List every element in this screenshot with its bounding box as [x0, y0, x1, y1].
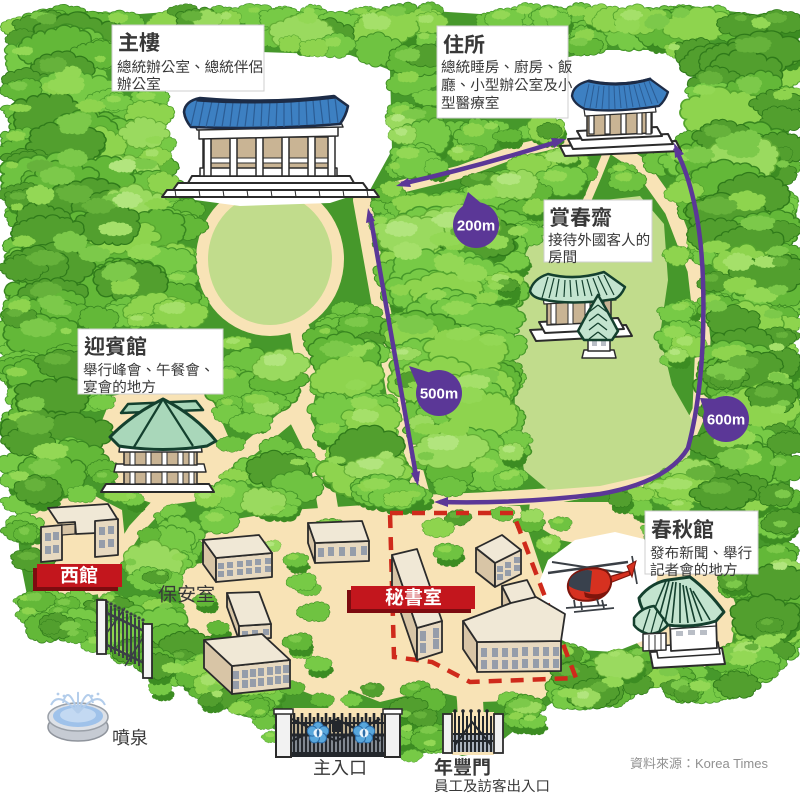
svg-text:600m: 600m [707, 412, 745, 429]
svg-text:Korea Times: Korea Times [695, 756, 768, 771]
svg-text:500m: 500m [420, 386, 458, 403]
svg-text:200m: 200m [457, 218, 495, 235]
